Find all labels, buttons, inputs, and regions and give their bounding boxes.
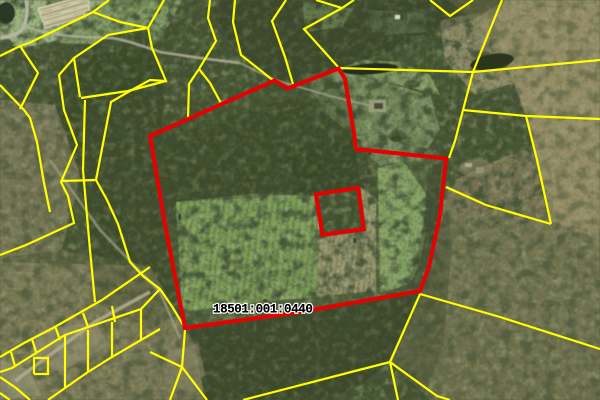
- svg-text:18501:001:0440: 18501:001:0440: [213, 303, 312, 317]
